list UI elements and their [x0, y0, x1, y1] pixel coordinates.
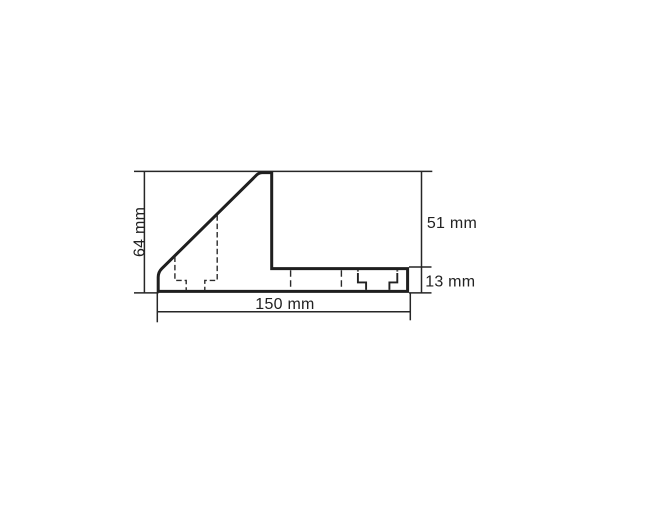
svg-text:51 mm: 51 mm — [427, 215, 477, 232]
svg-text:150 mm: 150 mm — [255, 296, 314, 313]
svg-text:64 mm: 64 mm — [131, 207, 148, 257]
svg-text:13 mm: 13 mm — [425, 273, 475, 290]
